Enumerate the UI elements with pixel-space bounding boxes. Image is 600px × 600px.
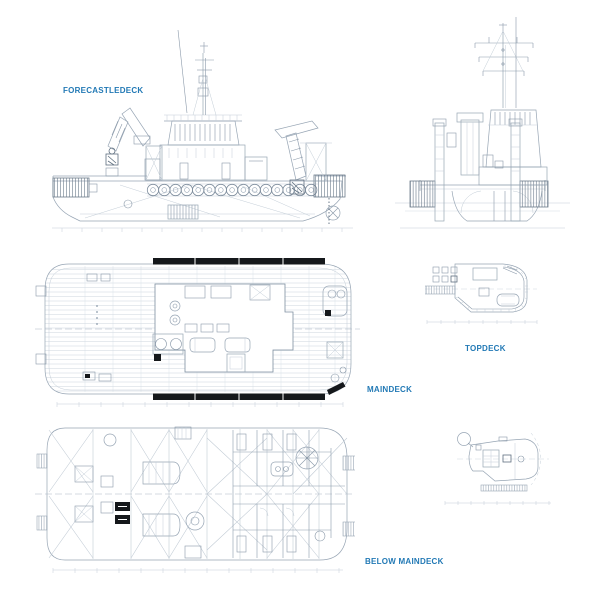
- topdeck-details: [425, 266, 519, 306]
- below-maindeck-plan-view: [35, 418, 355, 580]
- below-scale-bar: [53, 568, 343, 573]
- superstructure: [106, 115, 267, 180]
- aft-plan-details: [476, 437, 527, 491]
- topdeck-walkway: [425, 286, 455, 294]
- baseline-scale: [52, 228, 353, 232]
- label-below-maindeck: BELOW MAINDECK: [365, 557, 444, 566]
- aft-plan-hatched-strip: [481, 485, 527, 491]
- label-maindeck: MAINDECK: [367, 385, 412, 394]
- mast: [178, 30, 216, 115]
- bow-elevation-view: [395, 15, 570, 243]
- forward-crane: [106, 108, 162, 180]
- label-topdeck: TOPDECK: [465, 344, 506, 353]
- topdeck-plan-view: [425, 258, 540, 330]
- stern-fender: [314, 175, 345, 224]
- label-forecastledeck: FORECASTLEDECK: [63, 86, 143, 95]
- whip-antenna: [178, 30, 187, 113]
- aft-scale-bar: [445, 501, 551, 505]
- side-elevation-view: [50, 18, 355, 240]
- topdeck-scale-bar: [427, 320, 537, 324]
- bow-mast: [475, 17, 533, 108]
- aft-deck-plan-view: [443, 423, 555, 515]
- maindeck-scale-bar: [57, 402, 343, 407]
- maindeck-plan-view: [35, 254, 360, 412]
- hull-profile: [53, 176, 346, 221]
- bow-superstructure: [447, 110, 547, 185]
- ship-general-arrangement-sheet: FORECASTLEDECK TOPDECK MAINDECK BELOW MA…: [0, 0, 600, 600]
